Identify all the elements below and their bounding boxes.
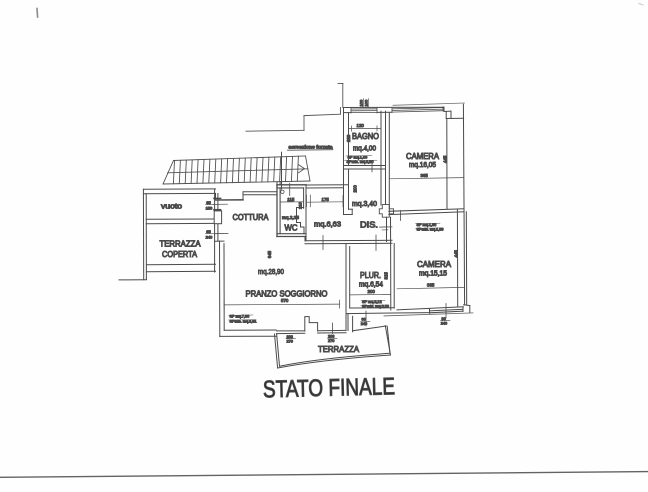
- svg-text:115: 115: [287, 197, 295, 202]
- svg-text:203: 203: [328, 335, 334, 339]
- svg-text:65: 65: [206, 200, 211, 205]
- svg-text:215: 215: [298, 202, 303, 209]
- svg-text:445: 445: [453, 250, 458, 258]
- svg-text:570: 570: [281, 298, 289, 303]
- svg-text:CAMERA: CAMERA: [406, 152, 440, 161]
- svg-text:mq.6,54: mq.6,54: [359, 281, 383, 288]
- svg-text:203: 203: [287, 335, 293, 339]
- svg-text:COPERTA: COPERTA: [162, 249, 197, 259]
- svg-text:BAGNO: BAGNO: [352, 132, 379, 141]
- svg-text:175: 175: [322, 197, 330, 202]
- svg-text:100: 100: [364, 99, 369, 106]
- svg-text:mq.16,05: mq.16,05: [409, 162, 436, 169]
- svg-text:200: 200: [368, 289, 376, 294]
- svg-text:STATO FINALE: STATO FINALE: [263, 373, 396, 403]
- svg-text:90: 90: [362, 318, 366, 322]
- svg-text:645: 645: [267, 250, 272, 258]
- svg-text:445: 445: [443, 155, 448, 163]
- svg-text:mq.2,35: mq.2,35: [282, 215, 299, 221]
- svg-text:mq.6,63: mq.6,63: [314, 219, 341, 228]
- svg-text:315: 315: [384, 272, 389, 280]
- svg-text:CAMERA: CAMERA: [417, 260, 452, 269]
- svg-text:mq.4,00: mq.4,00: [353, 146, 376, 153]
- svg-text:aereazione forzata: aereazione forzata: [289, 144, 334, 149]
- svg-text:220: 220: [346, 134, 351, 142]
- svg-text:65: 65: [206, 229, 211, 234]
- svg-text:120: 120: [357, 123, 365, 128]
- svg-text:240: 240: [206, 234, 213, 239]
- svg-text:mq.3,40: mq.3,40: [352, 201, 377, 208]
- svg-text:PLUR.: PLUR.: [360, 271, 381, 280]
- svg-text:TERRAZZA: TERRAZZA: [318, 344, 359, 354]
- svg-text:270: 270: [328, 339, 334, 343]
- svg-text:150: 150: [206, 205, 213, 210]
- svg-text:TERRAZZA: TERRAZZA: [160, 239, 201, 249]
- svg-text:365: 365: [421, 173, 429, 178]
- svg-text:335: 335: [427, 282, 435, 287]
- svg-text:DIS.: DIS.: [360, 220, 378, 229]
- svg-text:240: 240: [361, 322, 367, 326]
- svg-text:270: 270: [287, 340, 293, 344]
- svg-text:vuoto: vuoto: [161, 202, 182, 211]
- svg-text:WC: WC: [285, 223, 298, 233]
- svg-text:90: 90: [442, 317, 446, 321]
- svg-text:mq.28,90: mq.28,90: [258, 267, 284, 276]
- svg-text:COTTURA: COTTURA: [233, 213, 269, 222]
- svg-text:mq.15,15: mq.15,15: [419, 271, 447, 278]
- svg-text:200: 200: [353, 185, 358, 193]
- svg-text:240: 240: [441, 321, 447, 325]
